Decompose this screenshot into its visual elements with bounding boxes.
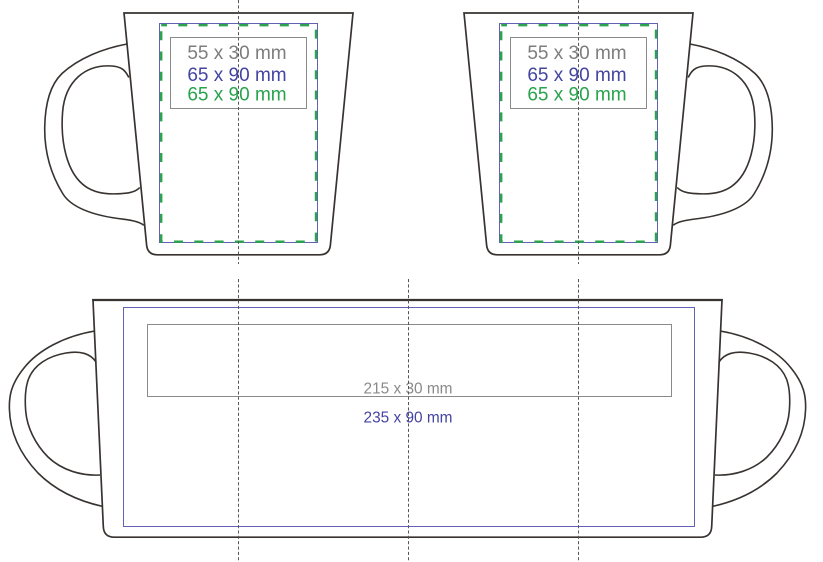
- svg-text:65 x 90 mm: 65 x 90 mm: [187, 84, 286, 105]
- svg-text:65 x 90 mm: 65 x 90 mm: [527, 65, 626, 86]
- svg-text:55 x 30 mm: 55 x 30 mm: [527, 43, 626, 64]
- svg-text:65 x 90 mm: 65 x 90 mm: [527, 84, 626, 105]
- svg-text:55 x 30 mm: 55 x 30 mm: [187, 43, 286, 64]
- svg-text:65 x 90 mm: 65 x 90 mm: [187, 65, 286, 86]
